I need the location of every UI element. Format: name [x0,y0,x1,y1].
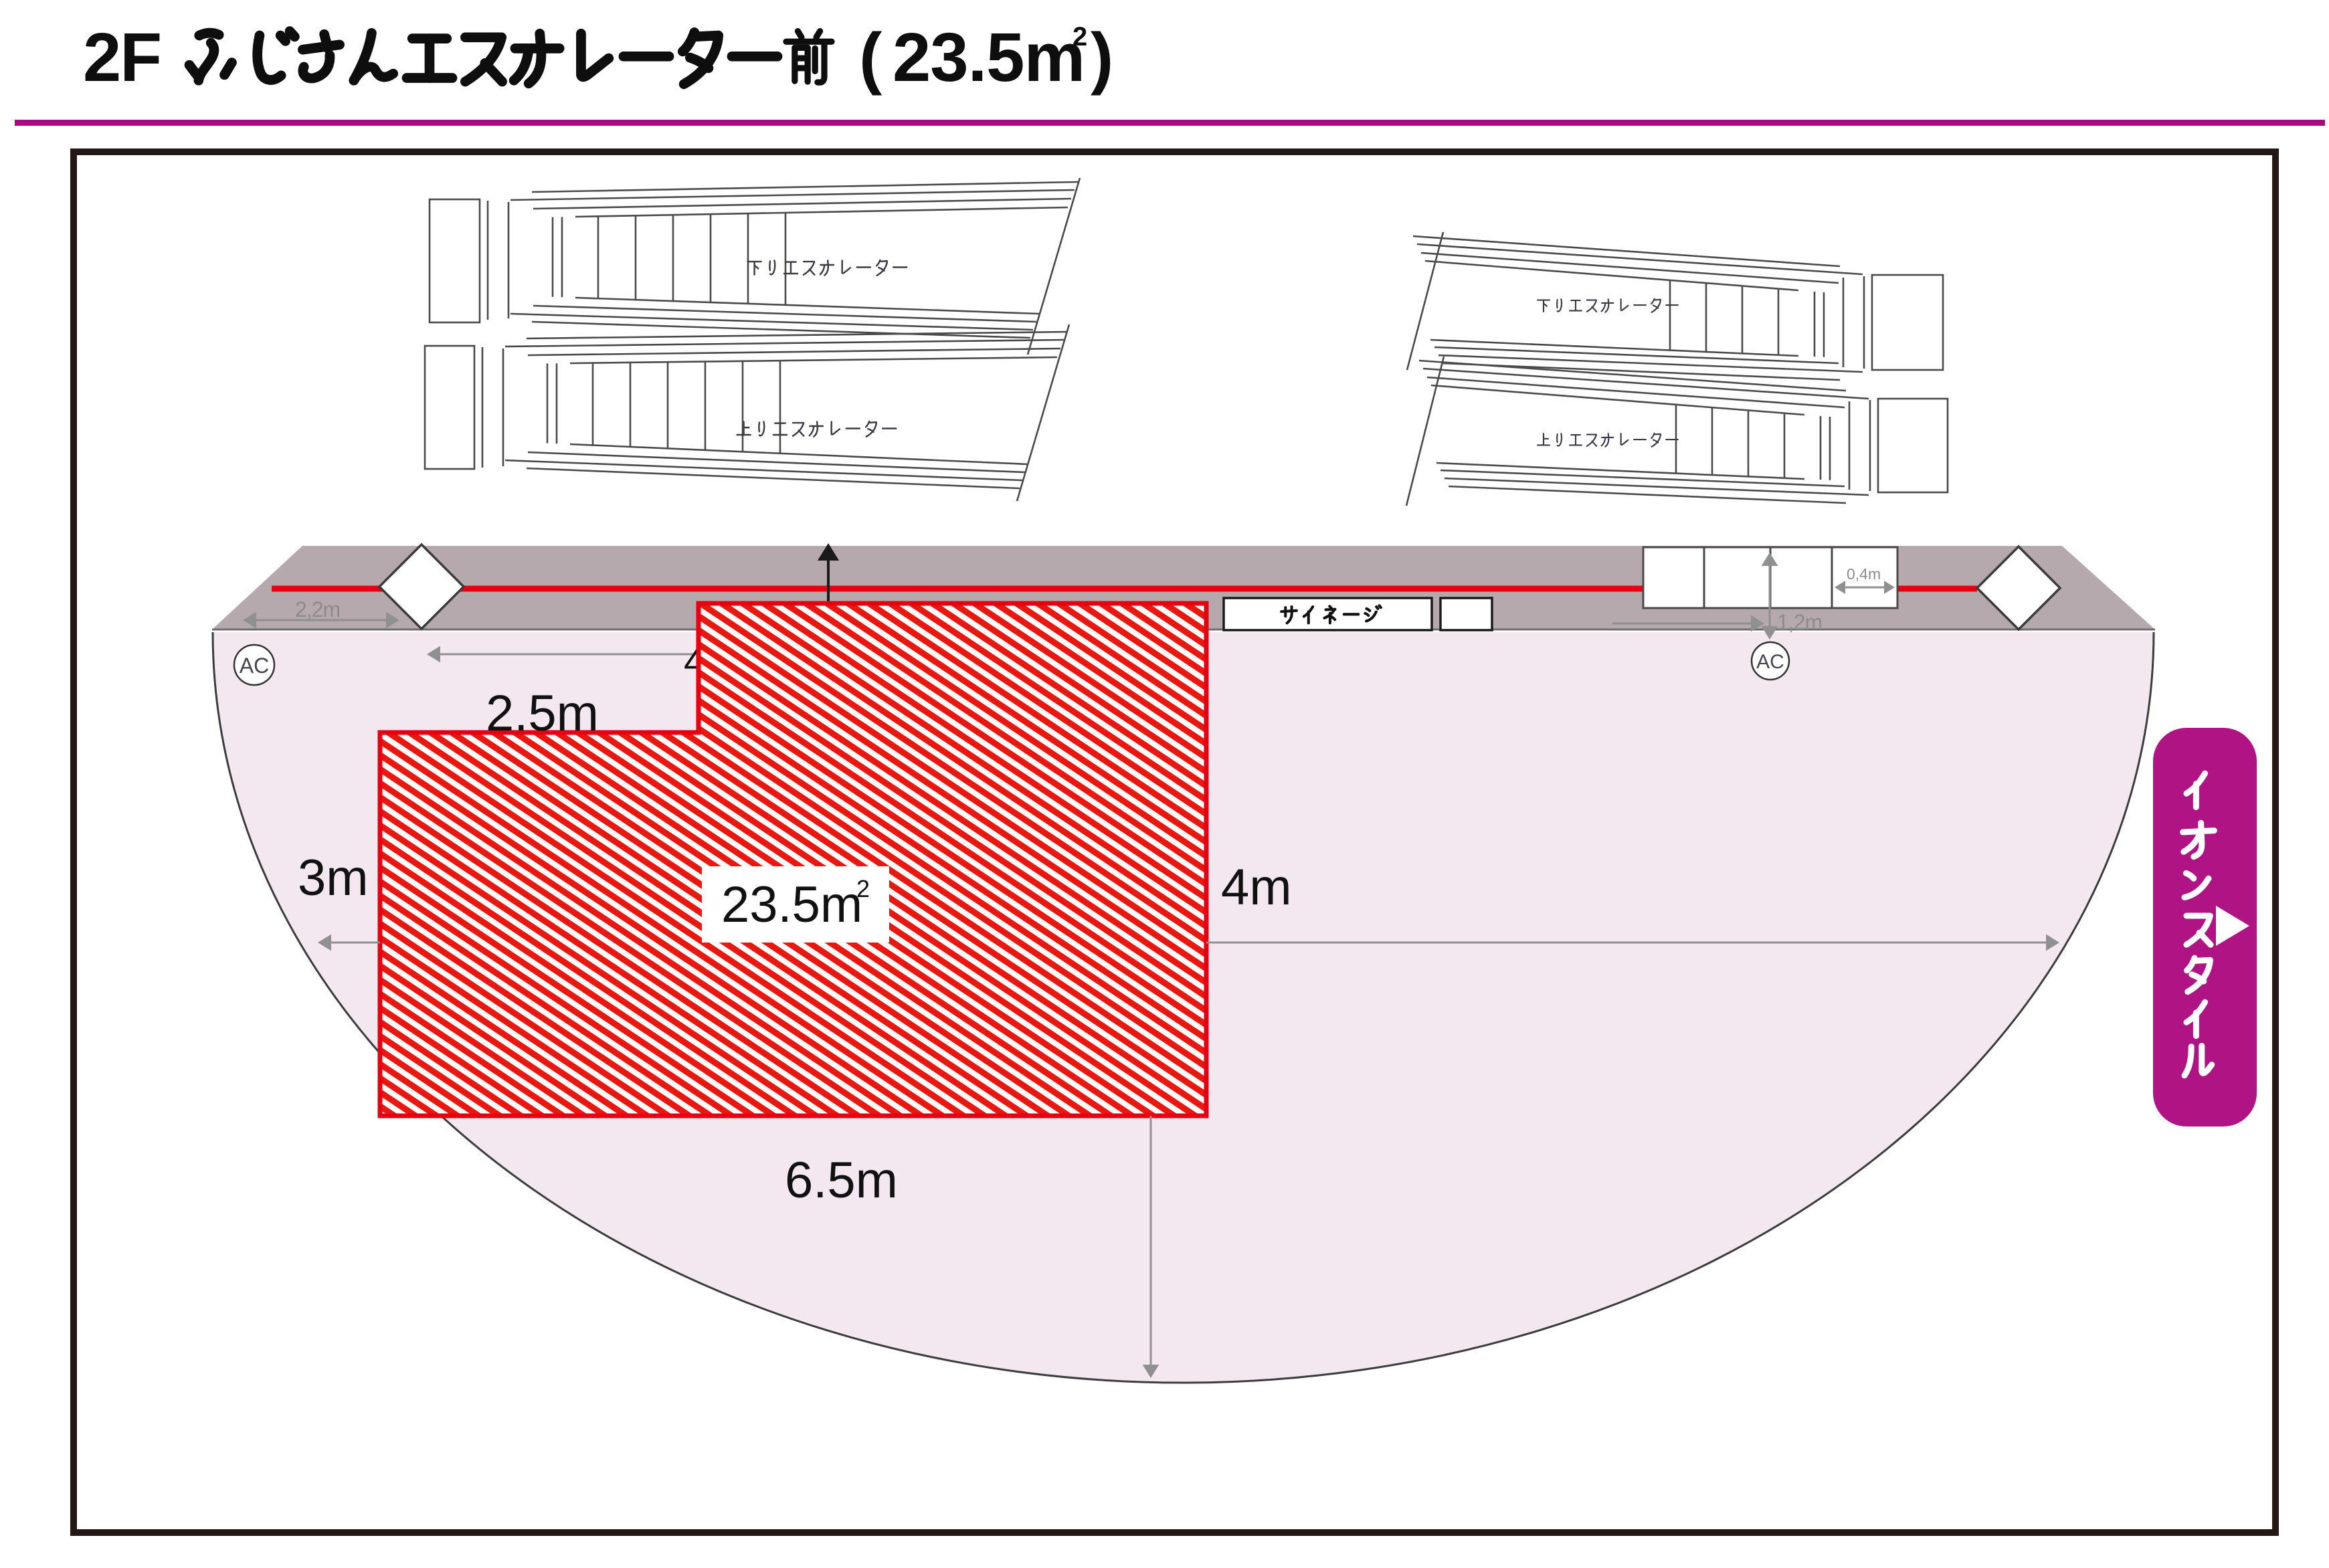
svg-text:AC: AC [240,654,269,678]
svg-text:23.5m: 23.5m [721,876,862,933]
svg-text:2: 2 [856,875,870,902]
svg-text:3m: 3m [298,850,369,906]
svg-text:23.5m: 23.5m [893,19,1085,96]
svg-text:(: ( [859,19,882,96]
svg-text:2,2m: 2,2m [295,597,340,621]
svg-text:AC: AC [1756,651,1784,673]
svg-text:4m: 4m [1221,859,1292,916]
svg-text:2: 2 [1073,22,1087,52]
svg-text:2.5m: 2.5m [486,685,599,742]
svg-text:): ) [1091,19,1113,96]
svg-text:2F: 2F [83,19,161,96]
svg-text:0,4m: 0,4m [1847,565,1881,583]
svg-text:1,2m: 1,2m [1777,610,1822,634]
svg-text:6.5m: 6.5m [785,1152,898,1209]
